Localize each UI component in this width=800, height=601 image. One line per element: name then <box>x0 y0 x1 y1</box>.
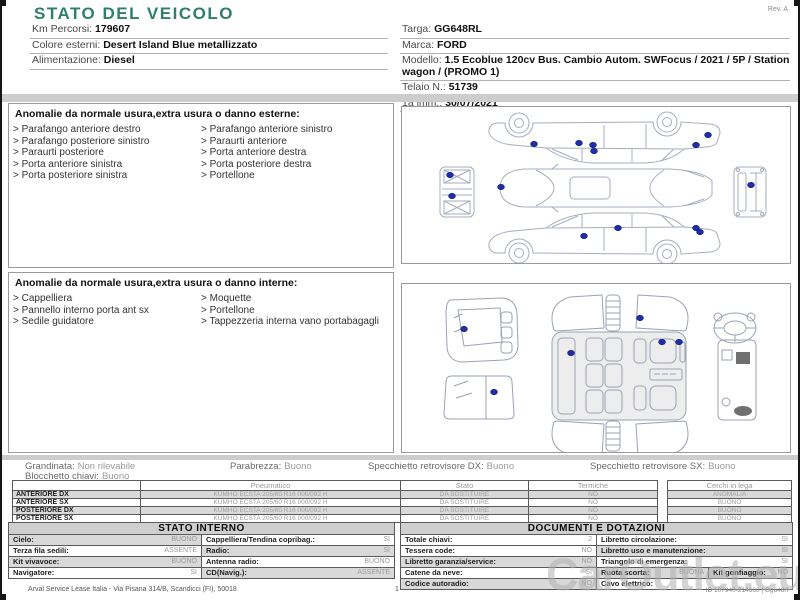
specchietto-dx-status: Specchietto retrovisore DX:Buono <box>368 461 514 472</box>
table-row: Navigatore:SI CD(Navig.):ASSENTE <box>9 568 395 579</box>
info-row-targa: Targa: GG648RL <box>400 23 790 39</box>
table-row: BUONO <box>668 499 792 507</box>
anomaly-item: Paraurti posteriore <box>13 147 201 159</box>
vehicle-report-page: STATO DEL VEICOLO Rev. A Km Percorsi: 17… <box>0 0 800 600</box>
table-row: ANTERIORE SX KUMHO ECSTA 205/60 R16 000/… <box>13 499 658 507</box>
anomaly-item: Pannello interno porta ant sx <box>13 305 201 317</box>
exterior-diagram-svg <box>402 107 790 263</box>
anomaly-item: Parafango posteriore sinistro <box>13 136 201 148</box>
internal-anomalies-col2: Moquette Portellone Tappezzeria interna … <box>201 293 389 328</box>
exterior-damage-diagram <box>401 106 791 264</box>
interior-damage-diagram <box>401 283 791 453</box>
footer-page-number: 1 <box>395 586 399 593</box>
corner-mark <box>0 594 6 600</box>
info-row-marca: Marca: FORD <box>400 39 790 55</box>
anomaly-item: Tappezzeria interna vano portabagagli <box>201 316 389 328</box>
tires-table: Pneumatico Stato Termiche ANTERIORE DX K… <box>12 480 658 523</box>
anomaly-item: Parafango anteriore destro <box>13 124 201 136</box>
vehicle-info-left: Km Percorsi: 179607 Colore esterni: Dese… <box>30 23 388 70</box>
section-divider <box>0 94 800 102</box>
anomaly-item: Porta anteriore destra <box>201 147 389 159</box>
anomaly-item: Paraurti anteriore <box>201 136 389 148</box>
revision-label: Rev. A <box>768 6 788 13</box>
anomaly-item: Porta posteriore sinistra <box>13 170 201 182</box>
tires-header-row: Pneumatico Stato Termiche <box>13 481 658 491</box>
section-divider <box>0 455 800 460</box>
documenti-title: DOCUMENTI E DOTAZIONI <box>401 523 793 535</box>
interior-diagram-svg <box>402 284 790 452</box>
anomaly-item: Sedile guidatore <box>13 316 201 328</box>
anomaly-item: Portellone <box>201 305 389 317</box>
col-header-cerchi: Cerchi in lega <box>668 481 792 491</box>
external-anomalies-title: Anomalie da normale usura,extra usura o … <box>9 104 393 123</box>
table-row: Terza fila sedili:ASSENTE Radio:SI <box>9 546 395 557</box>
info-row-modello: Modello: 1.5 Ecoblue 120cv Bus. Cambio A… <box>400 54 790 81</box>
external-anomalies-col2: Parafango anteriore sinistro Paraurti an… <box>201 124 389 182</box>
stato-interno-table: STATO INTERNO Cielo:BUONO Cappelliera/Te… <box>8 522 395 579</box>
internal-anomalies-title: Anomalie da normale usura,extra usura o … <box>9 273 393 292</box>
anomaly-item: Cappelliera <box>13 293 201 305</box>
info-row-colore: Colore esterni: Desert Island Blue metal… <box>30 39 388 55</box>
corner-mark <box>0 0 6 6</box>
anomaly-item: Moquette <box>201 293 389 305</box>
table-row: ANOMALIA <box>668 491 792 499</box>
external-anomalies-col1: Parafango anteriore destro Parafango pos… <box>13 124 201 182</box>
page-edge-left <box>0 0 2 600</box>
corner-mark <box>794 594 800 600</box>
table-row: POSTERIORE DX KUMHO ECSTA 205/60 R16 000… <box>13 507 658 515</box>
cerchi-in-lega-table: Cerchi in lega ANOMALIA BUONO BUONO BUON… <box>667 480 792 523</box>
table-row: Totale chiavi:2 Libretto circolazione:SI <box>401 535 793 546</box>
table-row: ANTERIORE DX KUMHO ECSTA 205/60 R16 000/… <box>13 491 658 499</box>
specchietto-sx-status: Specchietto retrovisore SX:Buono <box>590 461 736 472</box>
internal-anomalies-panel: Anomalie da normale usura,extra usura o … <box>8 272 394 453</box>
footer-doc-id: ID 107940-214660 | Gg648rl <box>706 587 788 594</box>
corner-mark <box>794 0 800 6</box>
col-header-stato: Stato <box>401 481 529 491</box>
table-row: Cielo:BUONO Cappelliera/Tendina copribag… <box>9 535 395 546</box>
anomaly-item: Parafango anteriore sinistro <box>201 124 389 136</box>
anomaly-item: Porta posteriore destra <box>201 159 389 171</box>
stato-interno-title: STATO INTERNO <box>9 523 395 535</box>
footer-company: Arval Service Lease Italia - Via Pisana … <box>28 586 237 593</box>
anomaly-item: Porta anteriore sinistra <box>13 159 201 171</box>
info-row-alimentazione: Alimentazione: Diesel <box>30 54 388 70</box>
parabrezza-status: Parabrezza:Buono <box>230 461 312 472</box>
anomaly-item: Portellone <box>201 170 389 182</box>
page-title: STATO DEL VEICOLO <box>34 4 234 24</box>
internal-anomalies-col1: Cappelliera Pannello interno porta ant s… <box>13 293 201 328</box>
external-anomalies-panel: Anomalie da normale usura,extra usura o … <box>8 103 394 268</box>
info-row-km: Km Percorsi: 179607 <box>30 23 388 39</box>
table-row: Kit vivavoce:BUONO Antenna radio:BUONO <box>9 557 395 568</box>
col-header-termiche: Termiche <box>529 481 658 491</box>
col-header-pneumatico: Pneumatico <box>141 481 401 491</box>
table-row: BUONO <box>668 507 792 515</box>
